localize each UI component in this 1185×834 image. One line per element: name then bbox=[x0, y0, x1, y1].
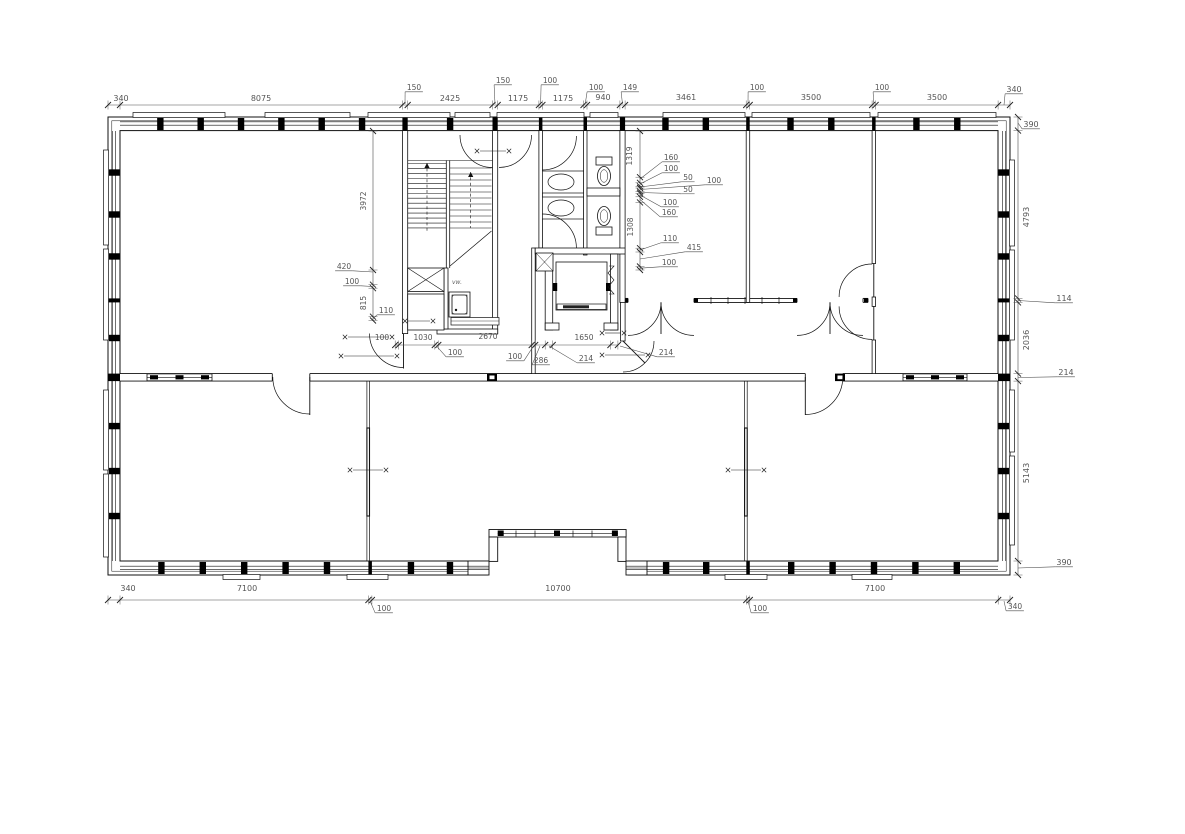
dimension-label: 100 bbox=[663, 198, 678, 207]
dimension-label: 2036 bbox=[1022, 330, 1031, 350]
dimension-label: 100 bbox=[662, 258, 677, 267]
dimension-label: 340 bbox=[113, 94, 128, 103]
dimension-label: 114 bbox=[1056, 294, 1071, 303]
dimension-label: 100 bbox=[589, 83, 604, 92]
dimension-label: 8075 bbox=[251, 94, 271, 103]
dimension-label: 100 bbox=[750, 83, 765, 92]
dimension-label: 160 bbox=[662, 208, 677, 217]
dimension-label: 3461 bbox=[676, 93, 696, 102]
dimension-label: 110 bbox=[663, 234, 678, 243]
dimension-label: 160 bbox=[664, 153, 679, 162]
dimension-label: 100 bbox=[753, 604, 768, 613]
dimension-label: 50 bbox=[683, 185, 693, 194]
dimension-label: 100 bbox=[543, 76, 558, 85]
dimension-label: 150 bbox=[407, 83, 422, 92]
dimension-label: 150 bbox=[496, 76, 511, 85]
floor-plan-sheet: vw.3408075242511751175940346135003500340… bbox=[0, 0, 1185, 834]
dimension-label: 5143 bbox=[1022, 463, 1031, 483]
dimension-label: 10700 bbox=[545, 584, 570, 593]
dimension-label: 3500 bbox=[927, 93, 947, 102]
dimension-label: 340 bbox=[1006, 85, 1021, 94]
dimension-label: 214 bbox=[659, 348, 674, 357]
dimension-label: 100 bbox=[508, 352, 523, 361]
dimension-label: 100 bbox=[377, 604, 392, 613]
dimension-label: 7100 bbox=[237, 584, 257, 593]
dimension-label: 2670 bbox=[478, 332, 497, 341]
dimension-label: 420 bbox=[337, 262, 352, 271]
dimension-label: 100 bbox=[448, 348, 463, 357]
dimension-label: 3500 bbox=[801, 93, 821, 102]
dimension-label: 390 bbox=[1056, 558, 1071, 567]
dimension-label: 1319 bbox=[625, 146, 634, 165]
dimension-label: 340 bbox=[120, 584, 135, 593]
dimension-label: 1175 bbox=[553, 94, 573, 103]
dimension-label: 50 bbox=[683, 173, 693, 182]
dimension-label: 286 bbox=[534, 356, 549, 365]
dimension-label: 100 bbox=[664, 164, 679, 173]
dimension-label: 7100 bbox=[865, 584, 885, 593]
dimension-label: 2425 bbox=[440, 94, 460, 103]
dimension-label: 1308 bbox=[626, 217, 635, 236]
dimension-label: 415 bbox=[687, 243, 702, 252]
dimension-label: 3972 bbox=[359, 191, 368, 210]
dimension-label: 940 bbox=[595, 93, 610, 102]
dimension-label: 110 bbox=[379, 306, 394, 315]
dimension-label: 1175 bbox=[508, 94, 528, 103]
dimension-label: 4793 bbox=[1022, 207, 1031, 227]
dimension-label: 815 bbox=[359, 296, 368, 311]
dimension-label: 214 bbox=[1058, 368, 1073, 377]
dimension-label: 340 bbox=[1008, 602, 1023, 611]
dimension-label: 214 bbox=[579, 354, 594, 363]
dimension-label: 149 bbox=[623, 83, 638, 92]
room-label-vw: vw. bbox=[452, 279, 462, 286]
dimension-label: 1650 bbox=[574, 333, 593, 342]
dimension-label: 1030 bbox=[413, 333, 432, 342]
dimension-label: 100 bbox=[345, 277, 360, 286]
floor-plan-canvas: vw.3408075242511751175940346135003500340… bbox=[0, 0, 1185, 834]
dimension-label: 390 bbox=[1023, 120, 1038, 129]
dimension-label: 100 bbox=[875, 83, 890, 92]
dimension-label: 100 bbox=[707, 176, 722, 185]
dimension-label: 100 bbox=[375, 333, 390, 342]
